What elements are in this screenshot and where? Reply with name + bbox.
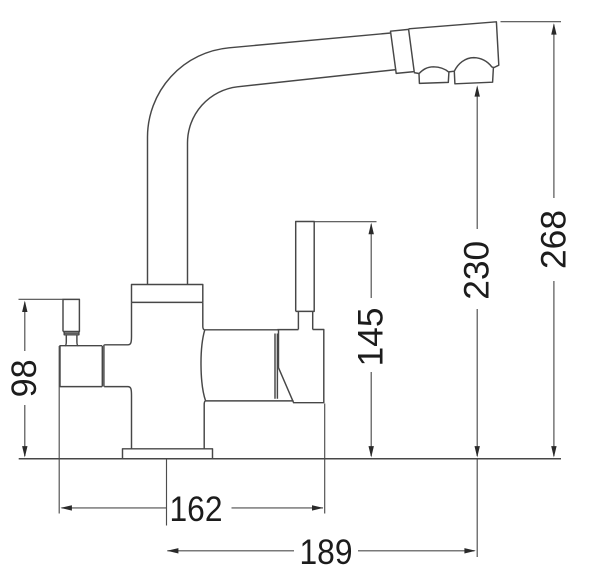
svg-text:230: 230 [458, 241, 497, 300]
svg-text:145: 145 [351, 308, 390, 367]
svg-text:189: 189 [300, 533, 353, 566]
svg-text:162: 162 [170, 490, 223, 529]
svg-text:98: 98 [5, 359, 44, 397]
svg-text:268: 268 [534, 210, 573, 269]
